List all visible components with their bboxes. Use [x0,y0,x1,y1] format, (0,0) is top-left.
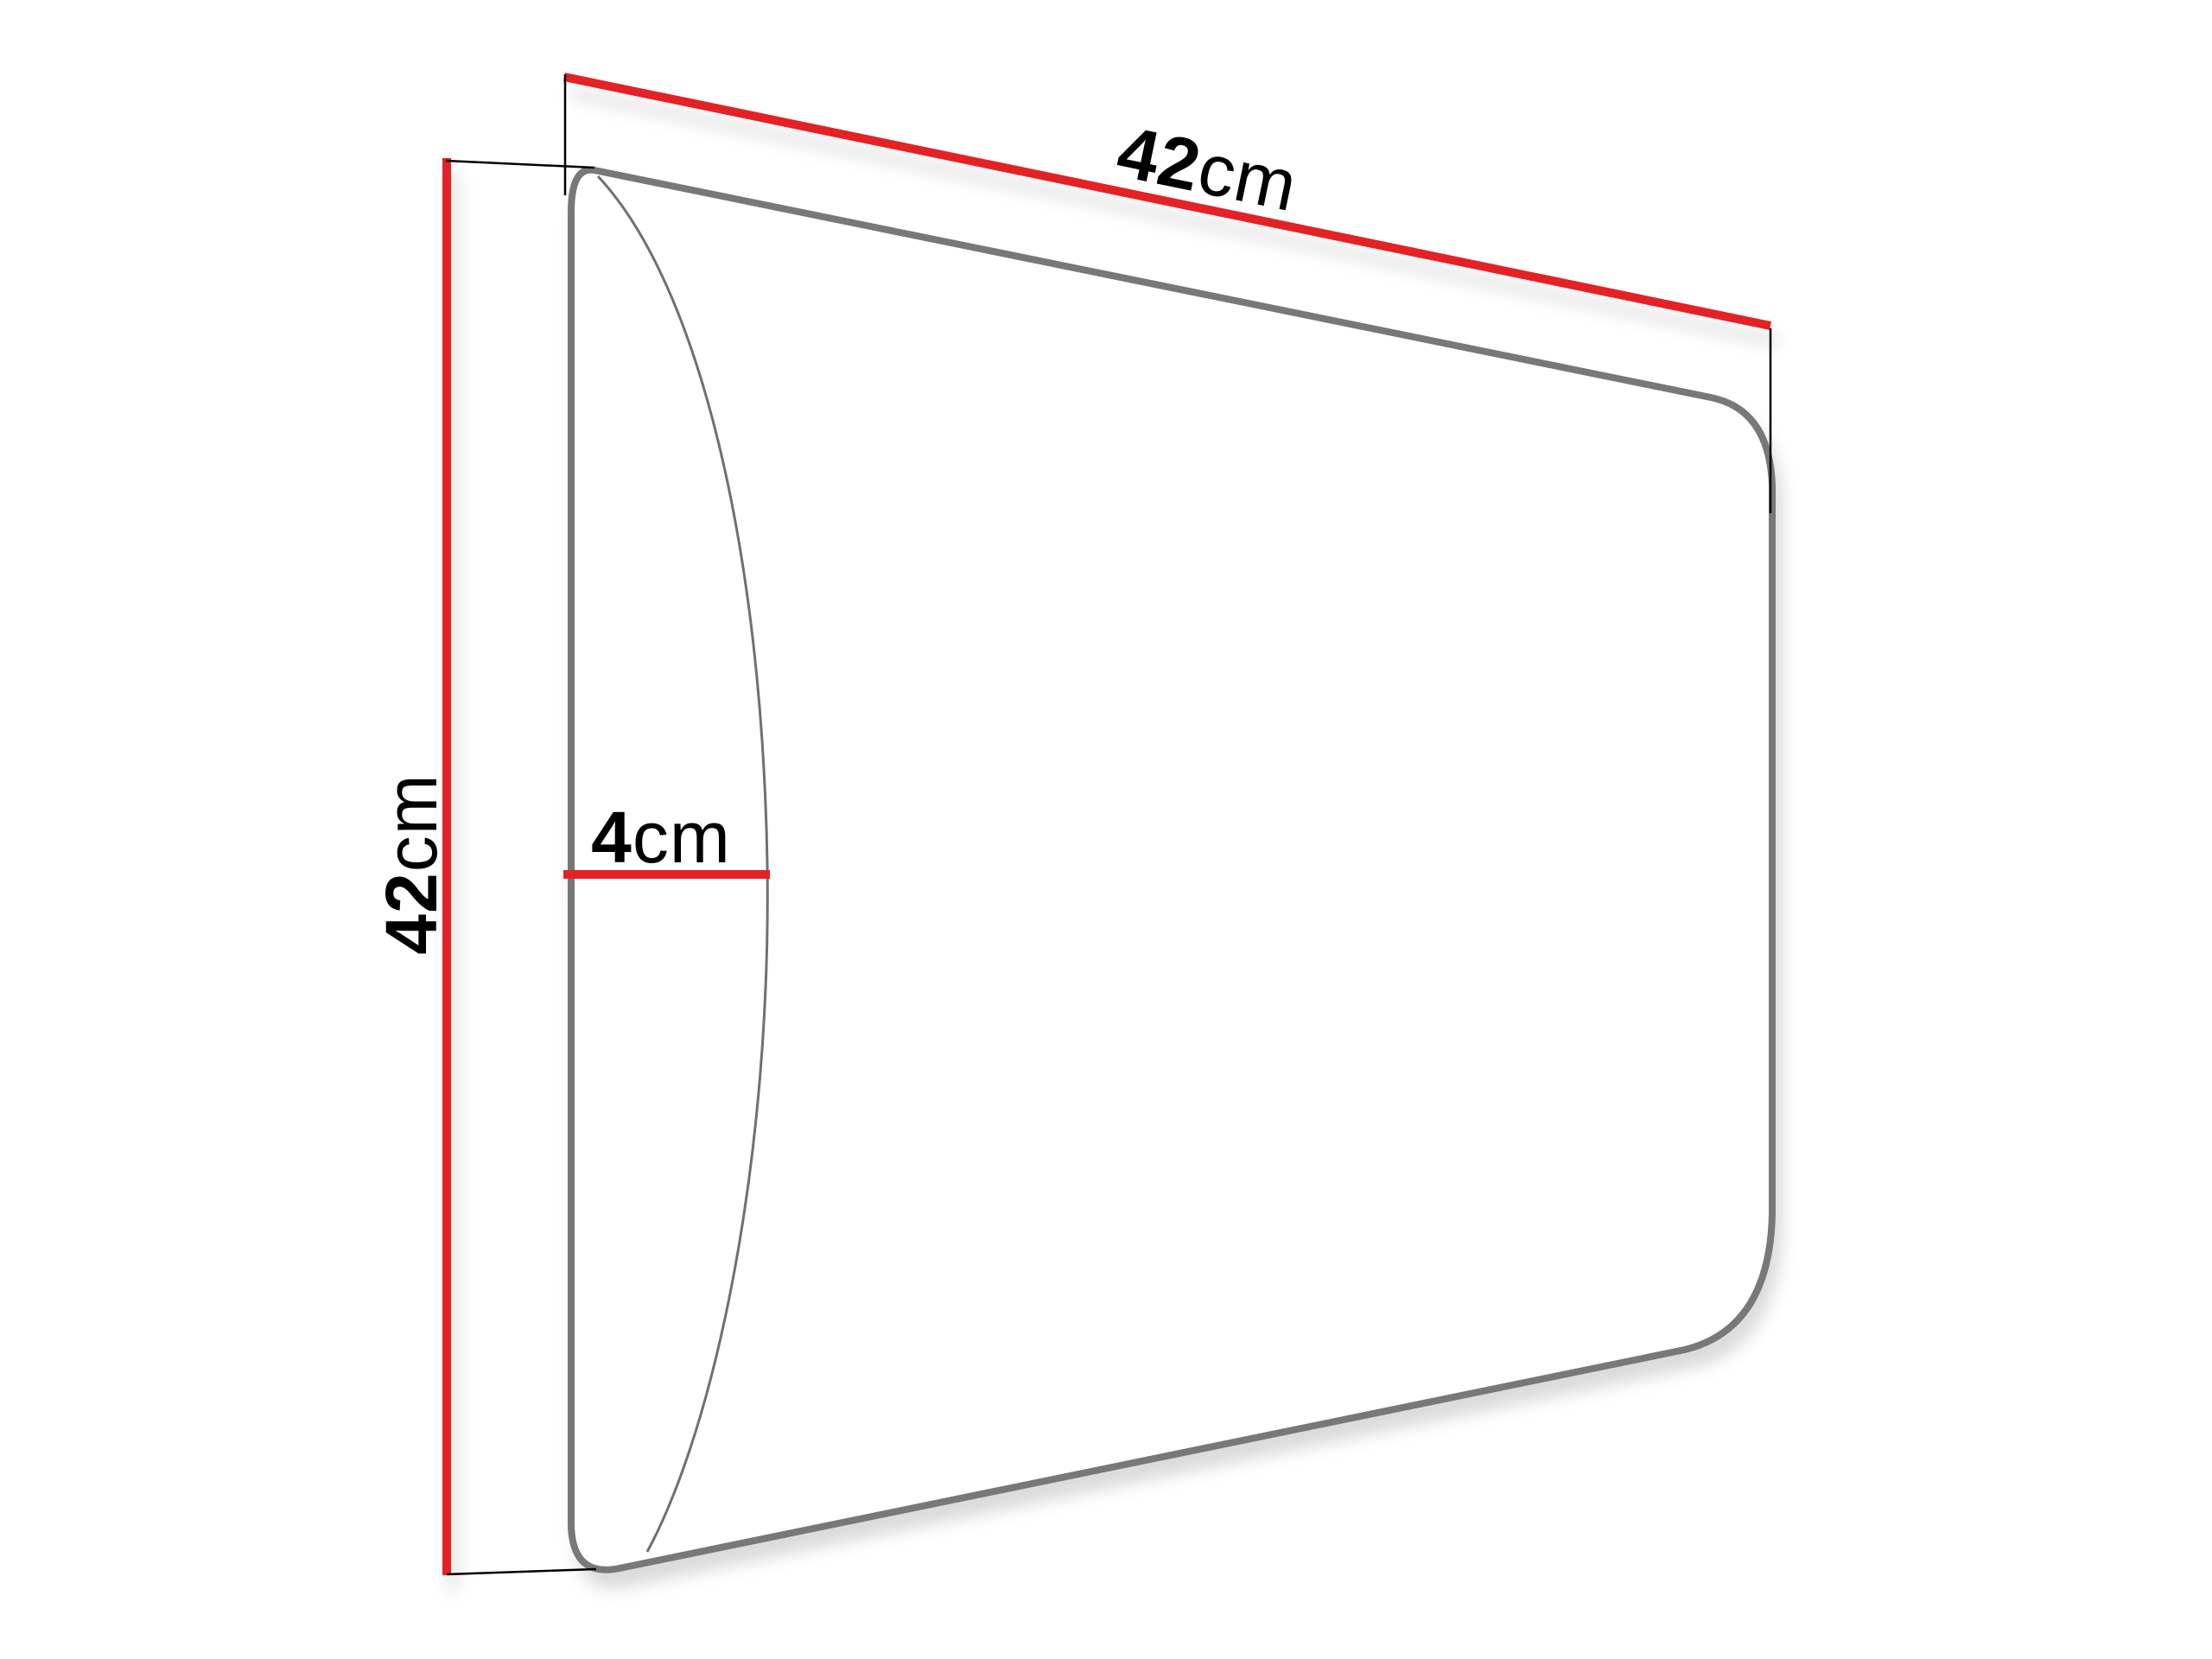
dimension-diagram-page: 42cm 42cm 4cm [0,0,2212,1659]
height-dimension-label: 42cm [371,773,452,954]
panel-front-outline [571,170,1772,1570]
width-value: 42 [1110,111,1208,207]
height-value: 42 [371,872,452,954]
depth-value: 4 [591,797,632,878]
depth-unit: cm [632,797,731,878]
depth-dimension-label: 4cm [591,797,731,878]
width-dimension-label: 42cm [1110,111,1304,227]
height-unit: cm [371,773,452,872]
panel-dimension-diagram: 42cm 42cm 4cm [0,0,2212,1659]
witness-line-top-left-horizontal [446,161,594,168]
witness-line-bottom-left-horizontal [447,1569,596,1574]
